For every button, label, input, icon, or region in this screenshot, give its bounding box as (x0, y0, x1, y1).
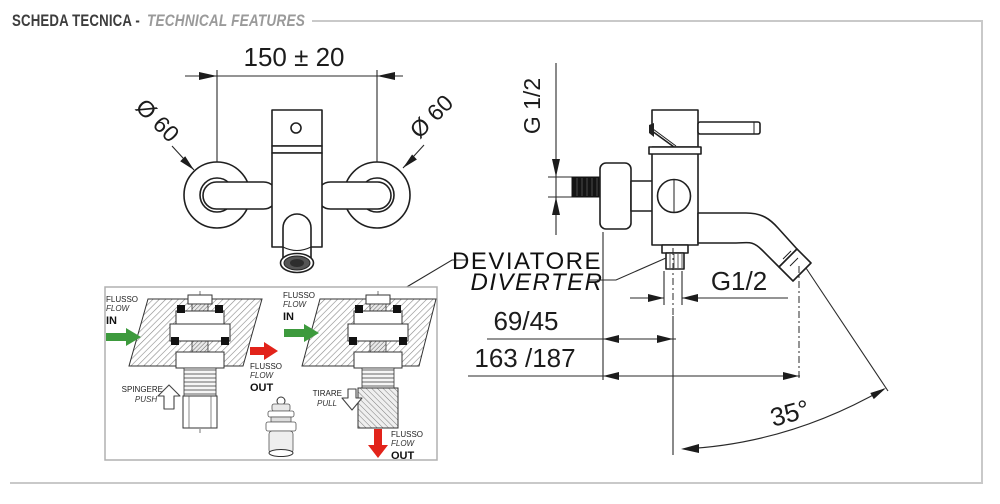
page-title-english: TECHNICAL FEATURES (147, 11, 305, 30)
dim-arrow-right-icon (657, 335, 673, 343)
pull-label-it: TIRARE (313, 389, 342, 398)
arc-arrow-right-icon (870, 388, 886, 399)
seal (355, 305, 363, 313)
valve-thread (362, 368, 394, 388)
dim-arrow-right-icon (199, 72, 217, 80)
flow-in-label-en: FLOW (283, 300, 308, 309)
technical-drawing: SCHEDA TECNICA - TECHNICAL FEATURES 150 … (0, 0, 1000, 504)
pull-label-en: PULL (317, 399, 337, 408)
depth-dimension-2: 163 /187 (468, 343, 800, 380)
dim-arrow-left-icon (603, 372, 619, 380)
seal (349, 337, 357, 345)
front-view: 150 ± 20 Ø 60 Ø 60 (131, 42, 467, 288)
seal (215, 305, 223, 313)
seal (221, 337, 229, 345)
depth2-label: 163 /187 (474, 343, 575, 373)
diverter-thread-dimension: G1/2 (630, 266, 788, 305)
diverter-knob (662, 245, 688, 253)
indicator-mark (649, 123, 654, 137)
diverter-inset: FLUSSO FLOW IN SPINGERE PUSH FLUSSO FLOW… (105, 287, 437, 462)
push-label-en: PUSH (135, 395, 157, 404)
flow-in-label: IN (106, 315, 117, 327)
flow-out-label-it: FLUSSO (250, 362, 282, 371)
flow-out-label: OUT (391, 450, 415, 462)
flow-out-label-it: FLUSSO (391, 430, 423, 439)
dim-arrow-down-icon (552, 159, 560, 177)
right-diameter-label: Ø 60 (405, 90, 459, 144)
dim-arrow-left-icon (603, 335, 619, 343)
inlet-thread-dimension: G 1/2 (519, 63, 572, 235)
handle-cap (652, 110, 698, 147)
flow-in-label-en: FLOW (106, 304, 131, 313)
diverter-callout: DEVIATORE DIVERTER (452, 248, 666, 296)
push-knob (183, 396, 217, 428)
mixer-body-side (600, 110, 811, 281)
left-wall-flange (184, 162, 277, 228)
valve-thread (184, 368, 216, 396)
technical-sheet-page: { "header": { "title_primary": "SCHEDA T… (0, 0, 1000, 504)
flow-in-label-it: FLUSSO (283, 291, 315, 300)
handle-lever (698, 122, 760, 134)
dim-arrow-up-icon (552, 197, 560, 215)
seal (393, 305, 401, 313)
page-title-italian: SCHEDA TECNICA - (12, 11, 140, 30)
left-diameter-label: Ø 60 (131, 94, 185, 148)
push-label-it: SPINGERE (122, 385, 163, 394)
flow-out-label-en: FLOW (391, 439, 416, 448)
dim-arrow-left-icon (682, 294, 698, 302)
depth-dimension-1: 69/45 (487, 306, 676, 343)
spout-angle-dimension: 35° (681, 388, 886, 453)
right-wall-flange (317, 162, 410, 228)
spout-angle-label: 35° (767, 393, 813, 432)
mixer-body-front (272, 110, 322, 273)
left-diameter-callout: Ø 60 (131, 94, 194, 170)
flow-out-label: OUT (250, 382, 274, 394)
diverter-label-english: DIVERTER (471, 269, 604, 296)
threaded-inlet (572, 177, 600, 197)
width-dimension-label: 150 ± 20 (243, 42, 344, 72)
dim-arrow-icon (403, 155, 417, 169)
spout-axis-line (806, 268, 888, 391)
dim-arrow-left-icon (377, 72, 395, 80)
flow-in-label: IN (283, 311, 294, 323)
inlet-thread-label: G 1/2 (519, 78, 545, 134)
pull-knob (358, 388, 398, 428)
dim-arrow-right-icon (783, 372, 799, 380)
dim-arrow-icon (180, 156, 194, 170)
diverter-thread-label: G1/2 (711, 266, 767, 296)
header: SCHEDA TECNICA - TECHNICAL FEATURES (12, 11, 305, 30)
arc-arrow-left-icon (681, 444, 699, 453)
right-diameter-callout: Ø 60 (403, 90, 458, 168)
spout-side (698, 213, 797, 267)
seal (177, 305, 185, 313)
seal (399, 337, 407, 345)
dim-arrow-right-icon (648, 294, 664, 302)
seal (171, 337, 179, 345)
side-view: G 1/2 (452, 63, 888, 455)
depth1-label: 69/45 (493, 306, 558, 336)
flow-out-label-en: FLOW (250, 371, 275, 380)
flow-in-label-it: FLUSSO (106, 295, 138, 304)
